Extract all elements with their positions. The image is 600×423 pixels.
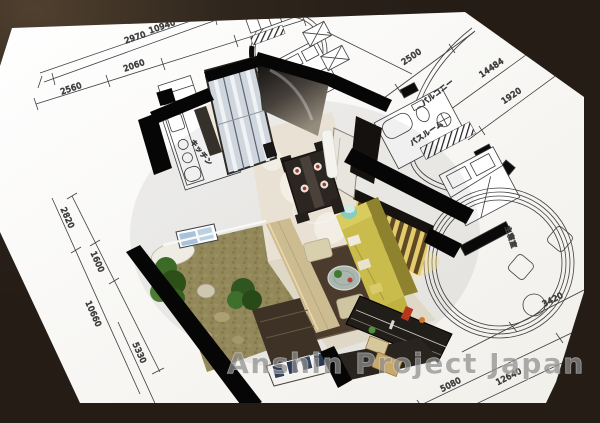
watermark-text: Anshin Project Japan <box>227 347 585 380</box>
floor-plan-artwork: キッチン バルコニー バスルーム 主寝室 10940 2970 2560 206… <box>0 0 600 423</box>
coffee-table <box>328 266 360 290</box>
stone-bowl <box>197 284 215 298</box>
floor-plan-screenshot: キッチン バルコニー バスルーム 主寝室 10940 2970 2560 206… <box>0 0 600 423</box>
